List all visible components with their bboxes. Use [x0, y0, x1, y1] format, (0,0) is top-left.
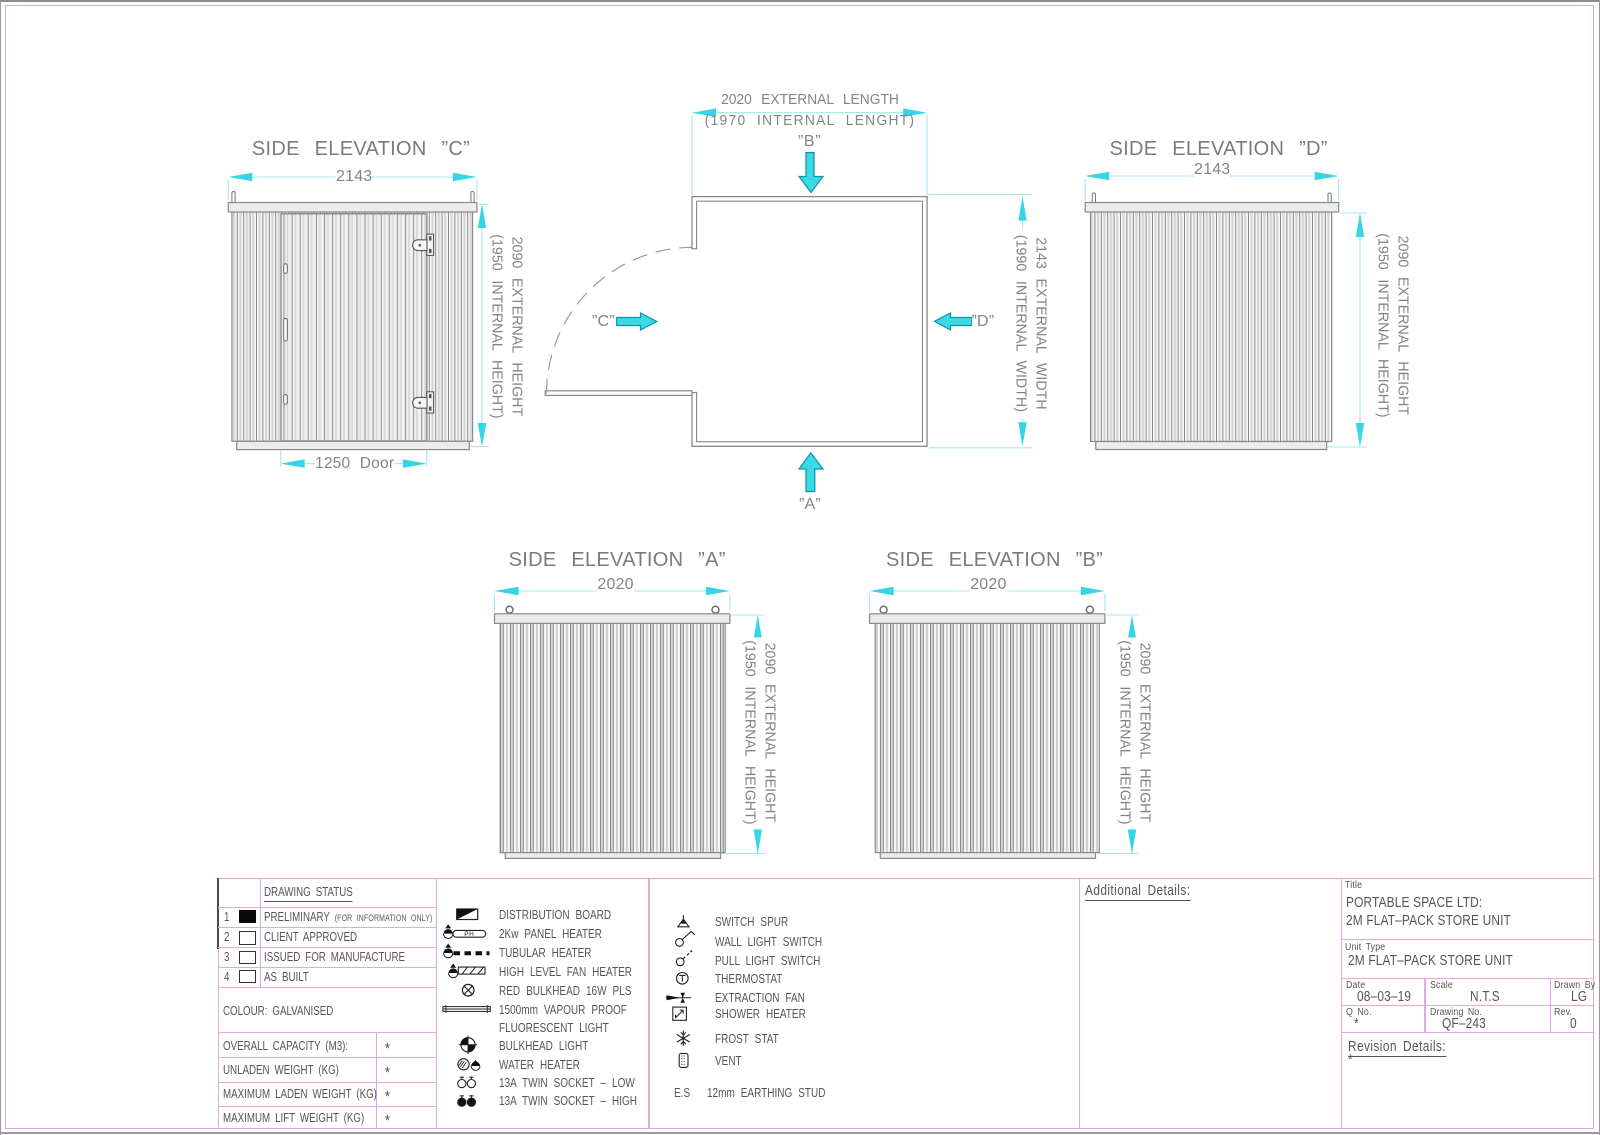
- svg-text:PH: PH: [464, 931, 474, 938]
